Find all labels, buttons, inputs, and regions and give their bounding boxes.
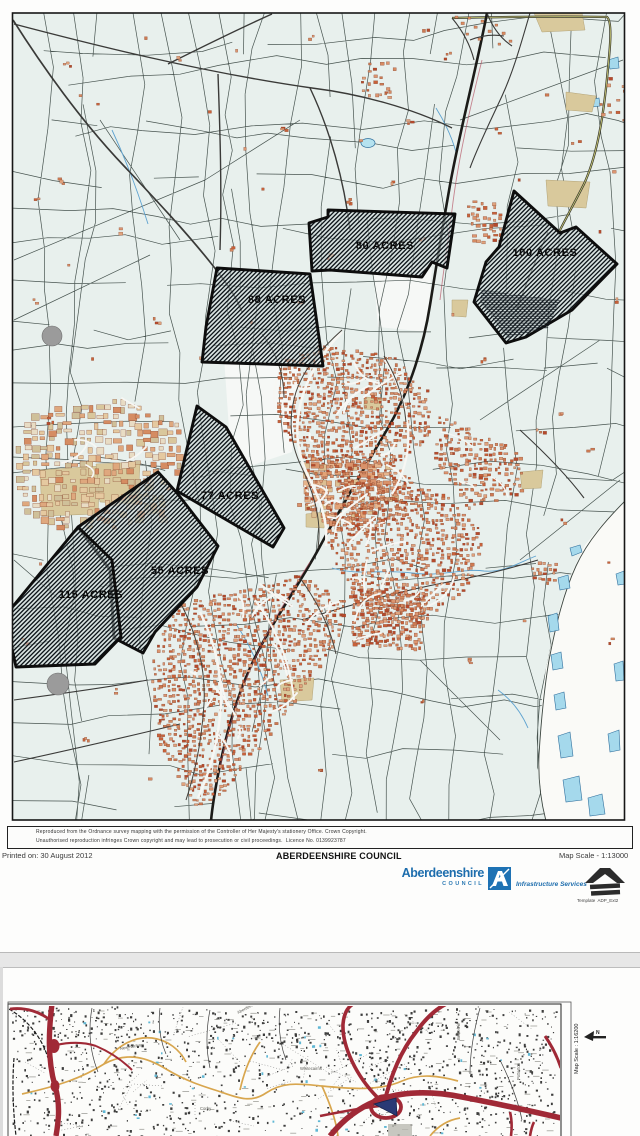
svg-text:Corby: Corby xyxy=(200,1106,212,1111)
svg-text:Map Scale : 1:16200: Map Scale : 1:16200 xyxy=(574,1024,580,1074)
svg-text:55 ACRES: 55 ACRES xyxy=(151,565,209,577)
svg-text:100 ACRES: 100 ACRES xyxy=(513,247,578,259)
svg-text:115 ACRES: 115 ACRES xyxy=(59,589,123,601)
svg-text:88 ACRES: 88 ACRES xyxy=(248,294,306,306)
svg-text:77 ACRES: 77 ACRES xyxy=(201,490,259,502)
svg-text:Belhelvie: Belhelvie xyxy=(456,1022,461,1040)
svg-text:Potterton: Potterton xyxy=(516,1062,521,1080)
svg-text:Whitecairns: Whitecairns xyxy=(300,1066,322,1071)
svg-text:N: N xyxy=(596,1030,600,1036)
svg-text:80 ACRES: 80 ACRES xyxy=(356,240,414,252)
